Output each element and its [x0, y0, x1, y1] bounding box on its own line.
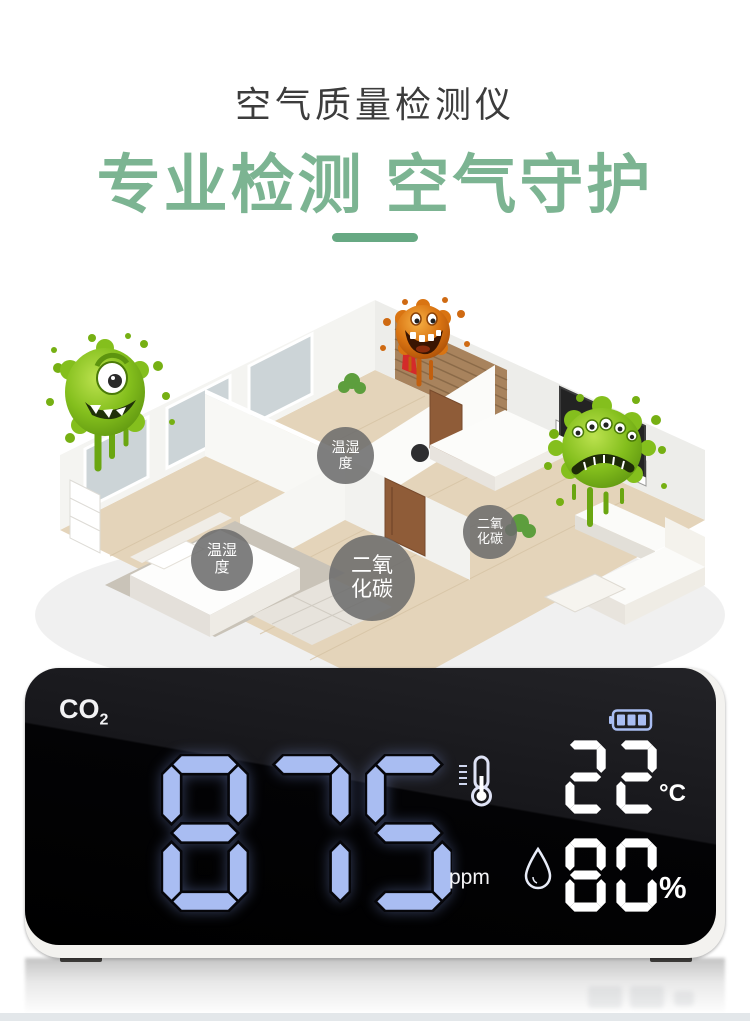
co2-unit-label: ppm [449, 866, 490, 890]
page-subtitle: 空气质量检测仪 [0, 76, 750, 128]
reflection-ghost-digit [630, 986, 664, 1008]
device-screen: CO2 ppm °C [25, 668, 716, 945]
germ-orange-smile-icon [375, 292, 475, 392]
sensor-label-temp-humidity-2: 温湿 度 [191, 529, 253, 591]
title-divider [332, 233, 418, 242]
sensor-label-temp-humidity-1: 温湿 度 [317, 427, 374, 484]
humidity-unit-label: % [659, 870, 687, 906]
page-title: 专业检测 空气守护 [0, 134, 750, 226]
air-quality-monitor: CO2 ppm °C [25, 668, 725, 958]
co2-gas-label: CO2 [59, 694, 108, 729]
battery-icon [608, 708, 654, 732]
thermometer-icon [455, 754, 499, 808]
temperature-value-display [565, 740, 657, 814]
germ-green-multi-eye-icon [540, 390, 670, 530]
humidity-drop-icon [522, 846, 554, 892]
product-page: 空气质量检测仪 专业检测 空气守护 [0, 0, 750, 1021]
reflection-ghost-digit [588, 986, 622, 1008]
co2-value-display [161, 754, 452, 912]
reflection-ghost-digit [674, 991, 694, 1006]
sensor-label-co2-large: 二氧 化碳 [329, 535, 415, 621]
sensor-label-co2-small: 二氧 化碳 [463, 505, 517, 559]
temperature-unit-label: °C [659, 780, 686, 808]
page-bottom-strip [0, 1013, 750, 1021]
humidity-value-display [565, 838, 657, 912]
germ-green-one-eye-icon [40, 330, 180, 480]
